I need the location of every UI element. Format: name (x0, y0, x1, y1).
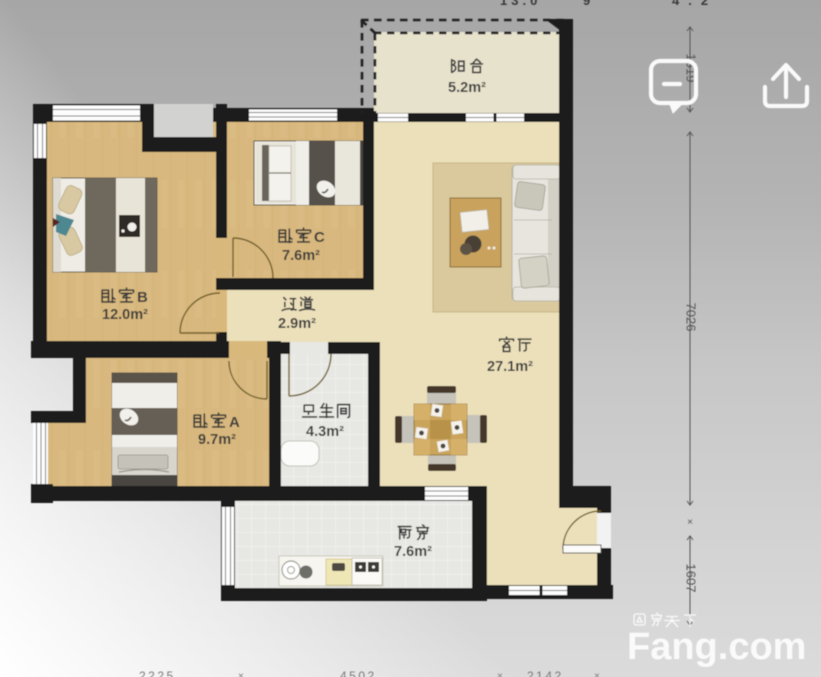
svg-text:×: × (594, 671, 600, 677)
svg-text:×: × (238, 671, 244, 677)
svg-text:12.0m²: 12.0m² (102, 307, 148, 323)
svg-text:5.2m²: 5.2m² (448, 80, 486, 96)
svg-text:7.6m²: 7.6m² (282, 248, 320, 264)
svg-text:2225: 2225 (139, 669, 176, 677)
svg-text:A: A (229, 414, 240, 431)
svg-text:Fang.com: Fang.com (627, 626, 806, 668)
svg-text:9: 9 (583, 0, 590, 8)
svg-text:B: B (137, 289, 148, 306)
svg-text:9.7m²: 9.7m² (198, 432, 236, 448)
svg-text:4502: 4502 (340, 669, 377, 677)
svg-text:27.1m²: 27.1m² (487, 359, 533, 375)
svg-text:4.3m²: 4.3m² (306, 424, 344, 440)
svg-text:×: × (687, 517, 693, 528)
svg-text:2.9m²: 2.9m² (278, 316, 316, 332)
svg-text:C: C (314, 229, 325, 246)
svg-text:7.6m²: 7.6m² (394, 544, 432, 560)
svg-text:7026: 7026 (684, 303, 699, 332)
svg-text:2142: 2142 (527, 669, 564, 677)
svg-text:4.2: 4.2 (672, 0, 717, 8)
svg-text:13.0: 13.0 (500, 0, 541, 8)
svg-text:1607: 1607 (684, 564, 699, 593)
svg-text:×: × (497, 671, 503, 677)
